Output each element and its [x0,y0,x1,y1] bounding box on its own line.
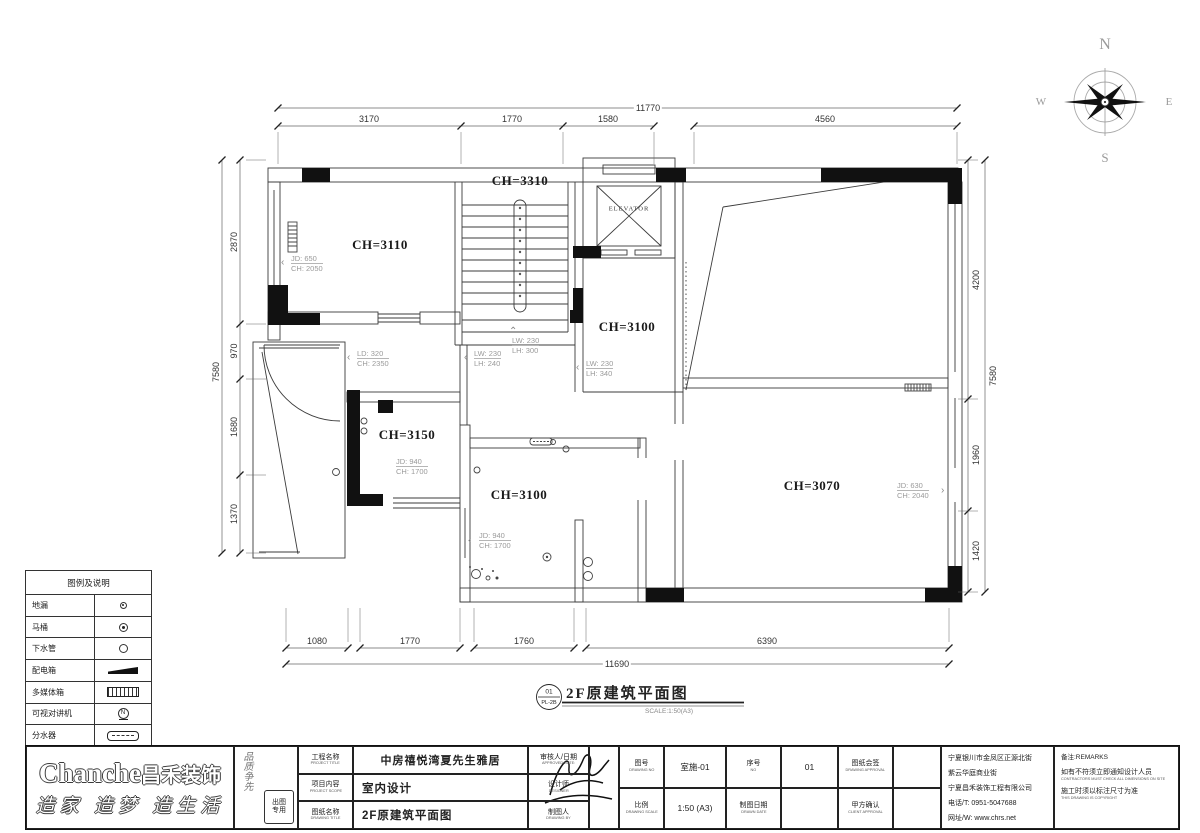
dim-top-seg: 1580 [596,114,620,124]
terrace [253,342,345,558]
door-annotation: JD: 940CH: 1700 [479,531,511,550]
video-intercom-icon: N [118,708,129,720]
compass-east-label: E [1166,96,1173,108]
tb-label: 甲方确认CLIENT APPROVAL [838,788,893,830]
company-info: 宁夏银川市金凤区正源北街 紫云华庭商业街 宁夏昌禾装饰工程有限公司 电话/T: … [941,746,1054,829]
dim-left-seg: 1370 [229,502,239,526]
dim-top-seg: 4560 [813,114,837,124]
drawing-scale: SCALE:1:50(A3) [645,708,693,715]
dim-right-total: 7580 [988,364,998,388]
motto-cell: 品质争先 出图专用 [234,746,298,829]
radiator-icon [288,222,297,252]
tb-label: 比例DRAWING SCALE [619,788,664,830]
window-annotation: LW: 230LH: 340 [586,359,613,378]
legend-table: 图例及说明 地漏 马桶 下水管 配电箱 多媒体箱 可视对讲机 N 分水器 [25,570,152,747]
door-annotation: LD: 320CH: 2350 [357,349,389,368]
leader-arrow-icon: ‹ [281,258,284,268]
tb-value-project-title: 中房禧悦湾夏先生雅居 [353,746,528,774]
logo-slogan: 造家 造梦 造生活 [36,791,225,818]
toilet-icon [119,623,128,632]
window-annotation: JD: 630CH: 2040 [897,481,929,500]
multimedia-box-icon [107,687,139,697]
dim-left-seg: 970 [229,341,239,360]
drawing-title: 2F原建筑平面图 [566,682,689,703]
mark-code: PL-2B [541,700,556,706]
dimension-ticks [219,105,989,668]
tb-label: 图纸会签DRAWING APPROVAL [838,746,893,788]
dim-bottom-seg: 1080 [305,636,329,646]
walls [253,158,962,602]
leader-arrow-icon: ‹ [576,363,579,373]
room-label: CH=3150 [379,427,435,443]
tb-label: 图纸名称DRAWING TITLE [298,801,353,829]
floor-drain-icon [120,602,127,609]
logo-brand-cn: 昌禾装饰 [141,765,221,787]
leader-arrow-icon: ‹ [464,353,467,363]
door-swing-icon [264,345,340,421]
motto-text: 品质争先 [239,751,253,791]
tb-value-project-scope: 室内设计 [353,774,528,801]
dim-bottom-seg: 6390 [755,636,779,646]
tb-value-drawing-title: 2F原建筑平面图 [353,801,528,829]
door-annotation: JD: 650CH: 2050 [291,254,323,273]
power-box-icon [108,667,138,674]
leader-arrow-icon: ‹ [347,353,350,363]
tb-label: 工程名称PROJECT TITLE [298,746,353,774]
dim-right-seg: 1420 [971,539,981,563]
legend-row: 可视对讲机 N [26,704,151,726]
logo-brand-en: Chanche [39,758,141,788]
tb-label: 图号DRAWING NO [619,746,664,788]
drain-dots [469,556,548,580]
tb-label: 制图日期DRAWN DATE [726,788,781,830]
elevator-label: ELEVATOR [609,206,650,213]
dim-left-total: 7580 [211,360,221,384]
signature-cell [589,746,619,829]
drain-pipe-icon [119,644,128,653]
dim-left-seg: 2870 [229,230,239,254]
compass-south-label: S [1101,150,1108,166]
dim-bottom-total: 11690 [603,659,631,669]
room-label: CH=3110 [352,237,408,253]
tb-scale: 1:50 (A3) [664,788,726,830]
legend-row: 下水管 [26,638,151,660]
tb-serial-no: 01 [781,746,838,788]
dim-top-seg: 1770 [500,114,524,124]
wall-fills [268,168,962,602]
legend-row: 地漏 [26,595,151,617]
water-distributor-icon [107,731,139,741]
room-label: CH=3100 [599,319,655,335]
dim-right-seg: 4200 [971,268,981,292]
drawing-sheet: 11770 3170 1770 1580 4560 1080 1770 1760… [0,0,1200,833]
tb-label: 项目内容PROJECT SCOPE [298,774,353,801]
title-block: Chanche昌禾装饰 造家 造梦 造生活 品质争先 出图专用 工程名称PROJ… [25,745,1180,830]
tb-label: 设计师DESIGNER [528,774,589,801]
dim-bottom-seg: 1770 [398,636,422,646]
leader-arrow-icon: › [941,486,944,496]
dim-left-seg: 1680 [229,415,239,439]
company-logo: Chanche昌禾装饰 造家 造梦 造生活 [26,746,234,829]
floorplan-linework [0,0,1200,833]
legend-row: 分水器 [26,725,151,746]
tb-drawing-no: 室施-01 [664,746,726,788]
window-annotation: LW: 230LH: 240 [474,349,501,368]
compass-rose [1064,68,1146,136]
tb-approval-blank [893,746,941,788]
tb-label: 制图人DRAWING BY [528,801,589,829]
remarks: 备注:REMARKS 如有不符须立即通知设计人员 CONTRACTORS MUS… [1054,746,1179,829]
dim-right-seg: 1960 [971,443,981,467]
multimedia-box-icon [905,384,931,391]
room-label: CH=3070 [784,478,840,494]
stair-balusters [519,207,521,297]
dim-top-seg: 3170 [357,114,381,124]
tb-label: 序号NO [726,746,781,788]
legend-title: 图例及说明 [26,571,151,595]
legend-row: 配电箱 [26,660,151,682]
compass-north-label: N [1099,36,1111,54]
dimension-lines [222,108,985,664]
tb-date-blank [781,788,838,830]
legend-row: 马桶 [26,617,151,639]
tb-client-blank [893,788,941,830]
dim-top-total: 11770 [634,103,662,113]
legend-row: 多媒体箱 [26,682,151,704]
room-label: CH=3100 [491,487,547,503]
leader-arrow-icon: ⌃ [509,327,517,337]
dim-bottom-seg: 1760 [512,636,536,646]
window-annotation: LW: 230LH: 300 [512,336,539,355]
compass-west-label: W [1036,96,1046,108]
leader-arrow-icon: ‹ [468,536,471,546]
mark-number: 01 [545,689,552,696]
door-annotation: JD: 940CH: 1700 [396,457,428,476]
release-stamp: 出图专用 [264,790,294,824]
tb-label: 审核人/日期APPROVED/DATE: [528,746,589,774]
room-label: CH=3310 [492,173,548,189]
